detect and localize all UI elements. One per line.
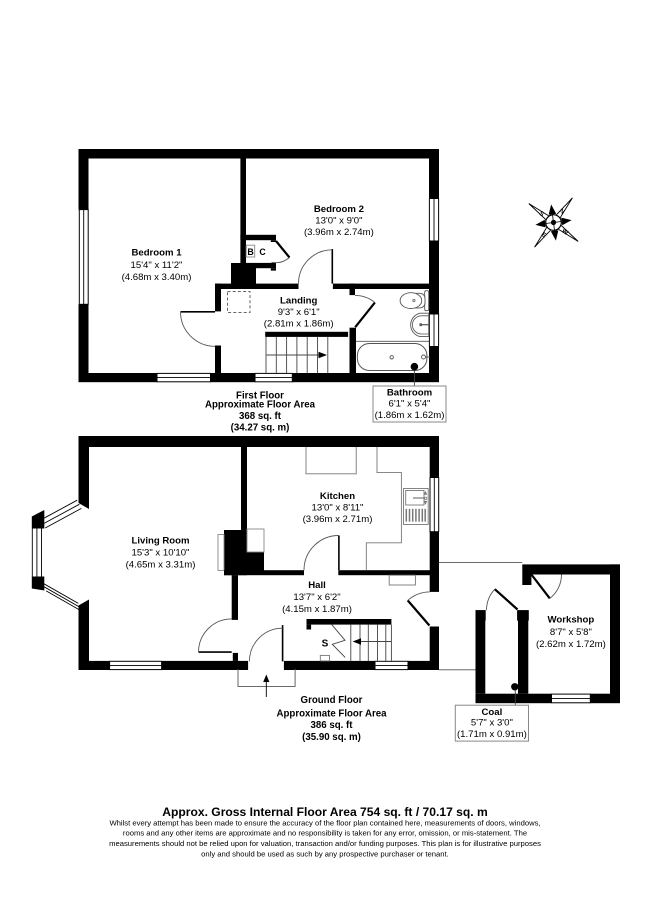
svg-text:9'3" x 6'1": 9'3" x 6'1" <box>278 307 320 318</box>
svg-text:Coal: Coal <box>482 707 503 718</box>
svg-text:(35.90 sq. m): (35.90 sq. m) <box>302 732 361 743</box>
svg-text:(4.65m x 3.31m): (4.65m x 3.31m) <box>126 560 196 571</box>
svg-text:(3.96m x 2.71m): (3.96m x 2.71m) <box>303 514 373 525</box>
svg-text:(1.86m x 1.62m): (1.86m x 1.62m) <box>375 410 445 421</box>
svg-text:(2.81m x 1.86m): (2.81m x 1.86m) <box>264 318 334 329</box>
svg-text:Hall: Hall <box>308 580 326 591</box>
svg-text:Landing: Landing <box>280 296 317 307</box>
svg-text:measurements should not be rel: measurements should not be relied upon f… <box>109 839 541 848</box>
svg-text:15'4" x 11'2": 15'4" x 11'2" <box>131 260 183 271</box>
svg-text:rooms and any other items are: rooms and any other items are approximat… <box>123 829 527 838</box>
svg-text:Approx. Gross Internal Floor A: Approx. Gross Internal Floor Area 754 sq… <box>162 805 488 819</box>
svg-text:(1.71m x 0.91m): (1.71m x 0.91m) <box>457 729 527 740</box>
svg-text:386 sq. ft: 386 sq. ft <box>311 720 354 731</box>
svg-text:Workshop: Workshop <box>548 615 595 626</box>
svg-text:C: C <box>259 247 266 257</box>
svg-text:Ground Floor: Ground Floor <box>301 695 363 706</box>
svg-text:13'7" x 6'2": 13'7" x 6'2" <box>293 592 340 603</box>
svg-text:5'7" x 3'0": 5'7" x 3'0" <box>471 718 513 729</box>
svg-text:Bedroom 1: Bedroom 1 <box>131 248 182 259</box>
svg-text:15'3" x 10'10": 15'3" x 10'10" <box>132 548 190 559</box>
svg-text:Bedroom 2: Bedroom 2 <box>314 204 364 215</box>
svg-text:Bathroom: Bathroom <box>387 388 432 399</box>
svg-text:Approximate Floor Area: Approximate Floor Area <box>205 400 316 411</box>
svg-text:13'0" x 8'11": 13'0" x 8'11" <box>312 503 364 514</box>
svg-text:368 sq. ft: 368 sq. ft <box>239 411 282 422</box>
svg-text:(3.96m x 2.74m): (3.96m x 2.74m) <box>304 227 374 238</box>
svg-text:(2.62m x 1.72m): (2.62m x 1.72m) <box>536 639 606 650</box>
svg-text:Living Room: Living Room <box>131 536 189 547</box>
svg-text:(4.68m x 3.40m): (4.68m x 3.40m) <box>122 272 192 283</box>
svg-text:only and should be used as suc: only and should be used as such by any p… <box>201 849 449 858</box>
svg-text:Whilst every attempt has been: Whilst every attempt has been made to en… <box>109 818 540 827</box>
svg-text:Kitchen: Kitchen <box>320 491 355 502</box>
svg-text:6'1" x 5'4": 6'1" x 5'4" <box>389 398 431 409</box>
svg-text:B: B <box>247 247 253 257</box>
svg-text:(34.27 sq. m): (34.27 sq. m) <box>231 423 290 434</box>
svg-text:8'7" x 5'8": 8'7" x 5'8" <box>550 627 592 638</box>
svg-text:13'0" x 9'0": 13'0" x 9'0" <box>315 216 362 227</box>
svg-text:S: S <box>322 639 329 650</box>
svg-text:Approximate Floor Area: Approximate Floor Area <box>277 709 388 720</box>
svg-text:(4.15m x 1.87m): (4.15m x 1.87m) <box>282 604 352 615</box>
